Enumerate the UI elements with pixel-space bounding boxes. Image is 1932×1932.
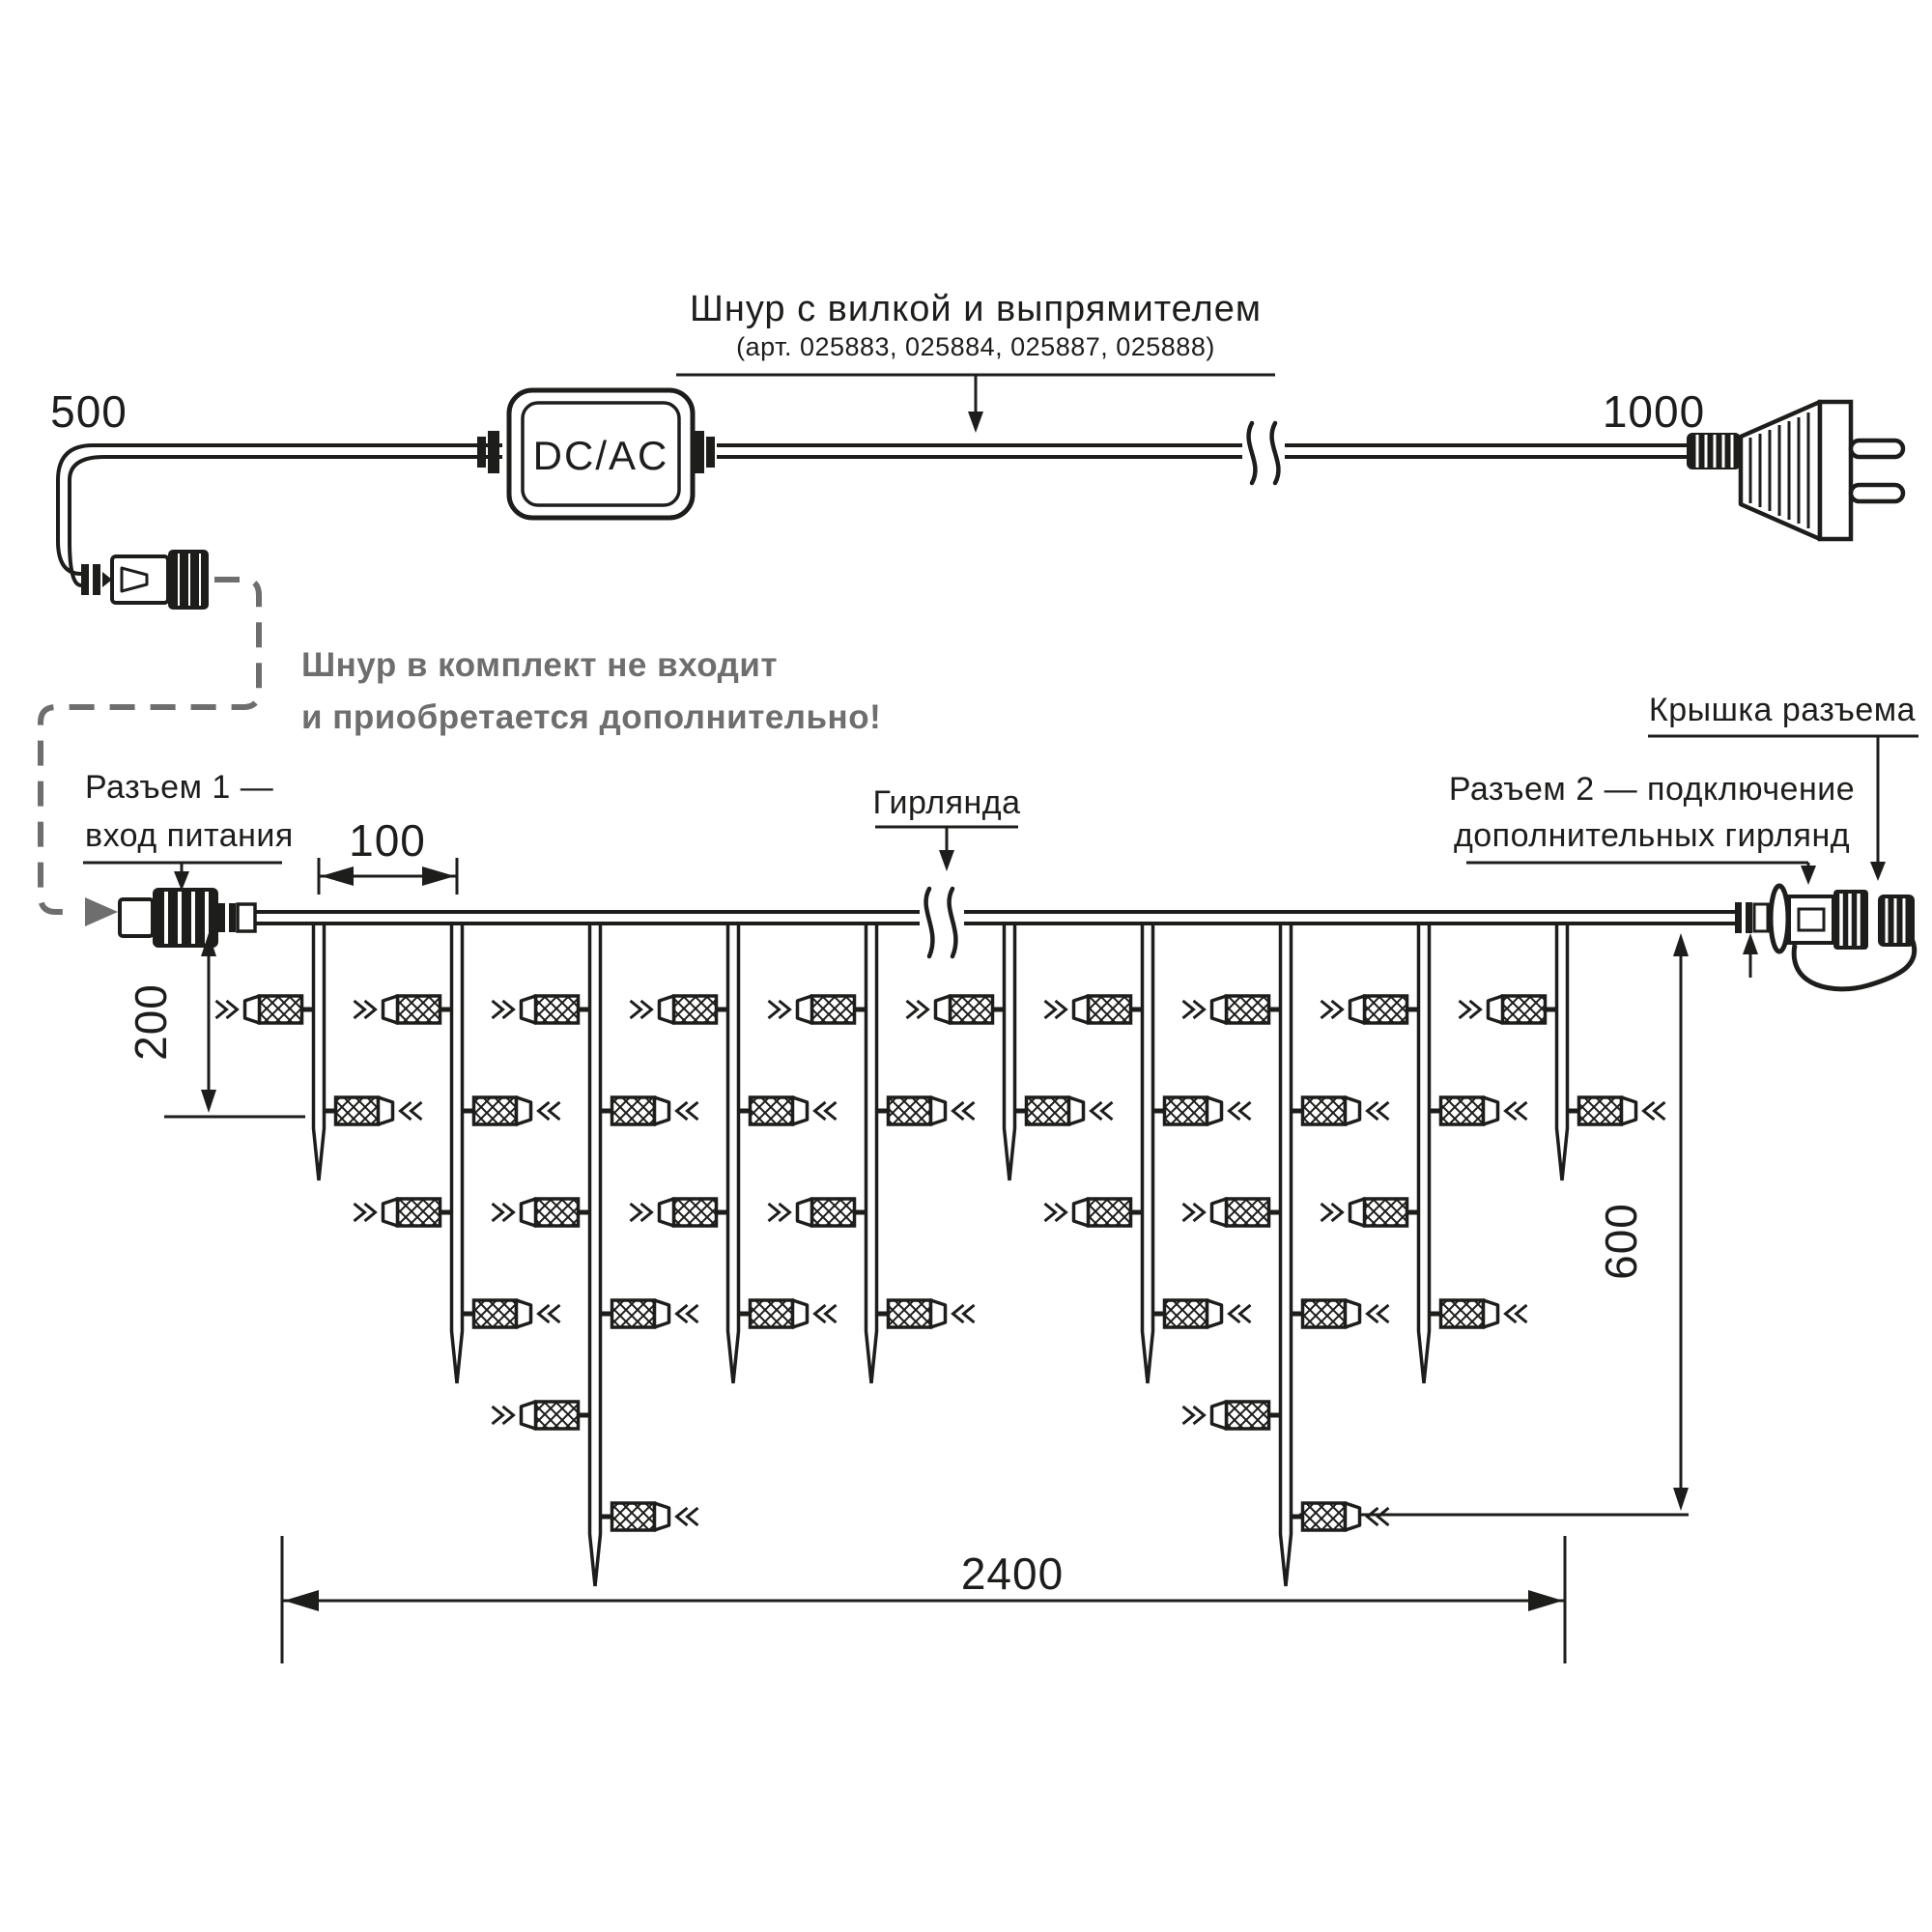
led-bulb	[463, 1097, 560, 1124]
light-rays-icon	[1460, 1001, 1470, 1018]
light-rays-icon	[493, 1204, 503, 1221]
garland-wire	[255, 889, 1735, 956]
led-bulb	[601, 1300, 698, 1327]
led-bulb	[877, 1097, 975, 1124]
cord-title: Шнур с вилкой и выпрямителем	[690, 289, 1262, 329]
light-rays-icon	[1102, 1102, 1113, 1120]
light-rays-icon	[769, 1204, 780, 1221]
led-bulb	[355, 1199, 452, 1226]
led-bulb	[1015, 1097, 1113, 1124]
drop-wire	[1557, 925, 1568, 1180]
led-bulb	[769, 1199, 867, 1226]
cap-leader-arrow	[1648, 736, 1918, 881]
led-bulb	[631, 996, 728, 1023]
connector1-label-line1: Разъем 1 —	[85, 769, 273, 806]
light-rays-icon	[1378, 1305, 1389, 1322]
light-rays-icon	[1183, 1406, 1194, 1424]
led-bulb	[631, 1199, 728, 1226]
light-rays-icon	[1045, 1001, 1056, 1018]
light-rays-icon	[1517, 1102, 1527, 1120]
light-rays-icon	[688, 1102, 698, 1120]
garland-drop	[1183, 925, 1389, 1586]
led-bulb	[216, 996, 314, 1023]
garland-drop	[1460, 925, 1665, 1180]
dim-1000-label: 1000	[1603, 386, 1705, 437]
garland-drop	[1045, 925, 1251, 1383]
drop-wire	[590, 925, 601, 1586]
connector-ring	[1771, 886, 1788, 952]
light-rays-icon	[964, 1102, 975, 1120]
light-rays-icon	[1183, 1204, 1194, 1221]
led-bulb	[1045, 1199, 1143, 1226]
light-rays-icon	[1378, 1508, 1389, 1525]
not-included-dashed-link	[41, 580, 259, 926]
led-bulb	[1292, 1097, 1389, 1124]
led-bulb	[769, 996, 867, 1023]
note-line2: и приобретается дополнительно!	[301, 698, 881, 736]
connector1-leader-arrow	[83, 863, 282, 891]
drop-wire	[314, 925, 325, 1180]
light-rays-icon	[1240, 1102, 1251, 1120]
light-rays-icon	[826, 1305, 837, 1322]
led-bulb	[1321, 996, 1419, 1023]
garland-label: Гирлянда	[872, 784, 1020, 821]
note-line1: Шнур в комплект не входит	[301, 646, 778, 684]
cord-wire-right	[717, 423, 1689, 483]
light-rays-icon	[769, 1001, 780, 1018]
dashed-arrowhead-icon	[85, 897, 118, 926]
garland-assembly: Разъем 1 — вход питания Гирлянда	[83, 692, 1918, 1663]
led-bulb	[1460, 996, 1557, 1023]
drop-wire	[1419, 925, 1430, 1383]
light-rays-icon	[355, 1204, 365, 1221]
connector2-label-line2: дополнительных гирлянд	[1454, 817, 1850, 854]
drop-wire	[1143, 925, 1153, 1383]
garland-drop	[355, 925, 560, 1383]
cap-label: Крышка разъема	[1649, 692, 1916, 728]
light-rays-icon	[1183, 1001, 1194, 1018]
led-bulb	[355, 996, 452, 1023]
cord-end-connector	[81, 550, 209, 610]
led-bulb	[493, 1199, 590, 1226]
light-rays-icon	[1655, 1102, 1665, 1120]
led-bulb	[877, 1300, 975, 1327]
led-bulb	[463, 1300, 560, 1327]
led-bulb	[1153, 1097, 1251, 1124]
led-bulb	[601, 1097, 698, 1124]
light-rays-icon	[493, 1001, 503, 1018]
light-rays-icon	[216, 1001, 227, 1018]
led-bulb	[1183, 996, 1281, 1023]
garland-schematic: 500 1000 Шнур с вилкой и выпрямителем (а…	[0, 0, 1932, 1932]
led-bulb	[739, 1097, 837, 1124]
light-rays-icon	[493, 1406, 503, 1424]
garland-drop	[493, 925, 698, 1586]
mains-plug	[1687, 402, 1903, 539]
light-rays-icon	[631, 1204, 641, 1221]
dim-100-label: 100	[349, 815, 426, 866]
dim-200-label: 200	[126, 983, 176, 1061]
connector2-with-cap	[1735, 886, 1915, 989]
dim-2400-label: 2400	[961, 1548, 1064, 1599]
light-rays-icon	[550, 1102, 560, 1120]
light-rays-icon	[631, 1001, 641, 1018]
light-rays-icon	[355, 1001, 365, 1018]
led-bulb	[1292, 1503, 1389, 1530]
light-rays-icon	[1378, 1102, 1389, 1120]
end-coupling-arrow	[1743, 933, 1758, 978]
dim-200: 200	[126, 933, 305, 1117]
led-bulb	[1292, 1300, 1389, 1327]
led-bulb	[1153, 1300, 1251, 1327]
led-bulb	[1045, 996, 1143, 1023]
led-bulb	[1321, 1199, 1419, 1226]
light-rays-icon	[1240, 1305, 1251, 1322]
connector2-label-line1: Разъем 2 — подключение	[1449, 771, 1855, 808]
light-rays-icon	[1045, 1204, 1056, 1221]
cord-break-symbol	[1249, 423, 1279, 483]
led-bulb	[1430, 1300, 1527, 1327]
connector2-leader-arrow	[1466, 863, 1816, 885]
dim-500-label: 500	[50, 386, 128, 437]
led-bulb	[493, 1402, 590, 1429]
connector1-label-line2: вход питания	[85, 817, 294, 854]
adapter-label: DC/AC	[533, 433, 669, 478]
cord-articles: (арт. 025883, 025884, 025887, 025888)	[736, 332, 1215, 361]
light-rays-icon	[907, 1001, 918, 1018]
light-rays-icon	[826, 1102, 837, 1120]
drop-wire	[728, 925, 739, 1383]
garland-leader-arrow	[875, 827, 1018, 871]
drop-wire	[1281, 925, 1292, 1586]
led-bulb	[601, 1503, 698, 1530]
led-bulb	[1430, 1097, 1527, 1124]
connector1-power-input	[120, 888, 255, 948]
plug-prong-top	[1851, 440, 1903, 457]
light-rays-icon	[412, 1102, 422, 1120]
light-rays-icon	[550, 1305, 560, 1322]
icicle-drops	[216, 925, 1665, 1586]
led-bulb	[907, 996, 1005, 1023]
light-rays-icon	[1321, 1204, 1332, 1221]
garland-drop	[907, 925, 1113, 1180]
garland-drop	[216, 925, 422, 1180]
led-bulb	[325, 1097, 422, 1124]
led-bulb	[739, 1300, 837, 1327]
dim-2400: 2400	[282, 1536, 1565, 1663]
cord-leader-arrow	[676, 375, 1275, 433]
diagram-canvas: 500 1000 Шнур с вилкой и выпрямителем (а…	[0, 0, 1932, 1932]
light-rays-icon	[964, 1305, 975, 1322]
led-bulb	[1183, 1199, 1281, 1226]
drop-wire	[867, 925, 877, 1383]
dc-ac-adapter: DC/AC	[477, 390, 715, 518]
light-rays-icon	[1517, 1305, 1527, 1322]
drop-wire	[452, 925, 463, 1383]
light-rays-icon	[1321, 1001, 1332, 1018]
garland-break-symbol	[926, 889, 956, 956]
plug-prong-bottom	[1851, 485, 1903, 501]
led-bulb	[1183, 1402, 1281, 1429]
dim-100: 100	[319, 815, 457, 895]
light-rays-icon	[688, 1508, 698, 1525]
drop-wire	[1005, 925, 1015, 1180]
led-bulb	[1568, 1097, 1665, 1124]
dim-600-label: 600	[1596, 1203, 1646, 1280]
light-rays-icon	[688, 1305, 698, 1322]
led-bulb	[493, 996, 590, 1023]
